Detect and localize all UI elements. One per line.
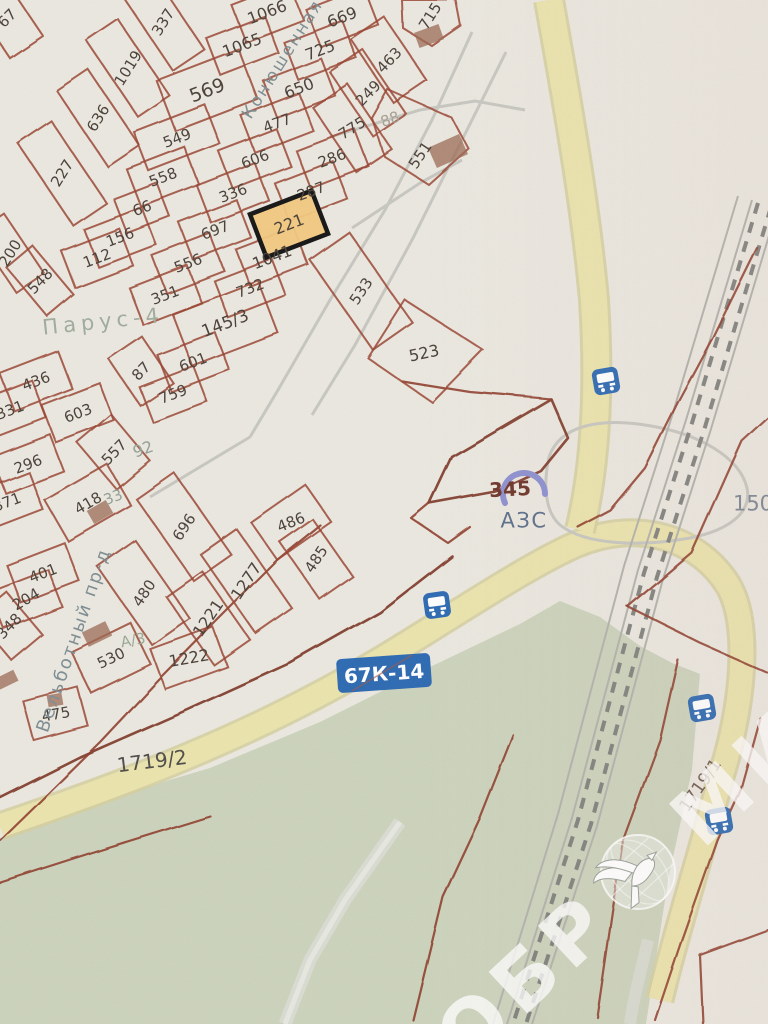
cadastral-map: 221 673371019636227106666971510657254632…	[0, 0, 768, 1024]
map-photo: 221 673371019636227106666971510657254632…	[0, 0, 768, 1024]
photo-tint	[0, 0, 768, 1024]
